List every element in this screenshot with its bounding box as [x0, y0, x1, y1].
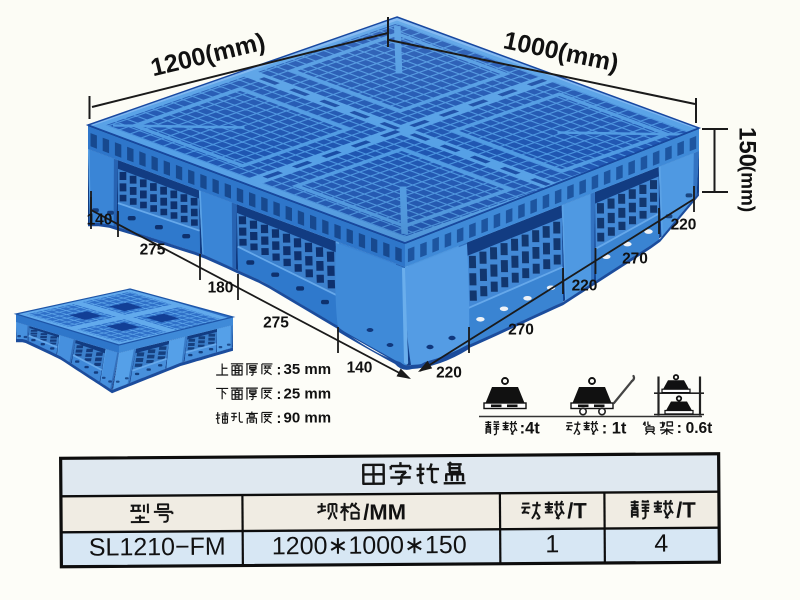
- svg-text::: :: [277, 411, 282, 427]
- svg-text:/T: /T: [676, 497, 696, 522]
- svg-text:275: 275: [140, 242, 166, 259]
- svg-text:/T: /T: [567, 498, 587, 523]
- svg-text:90 mm: 90 mm: [284, 410, 332, 427]
- svg-text:150: 150: [734, 127, 761, 167]
- svg-text::: :: [602, 420, 608, 438]
- svg-text::: :: [277, 363, 282, 379]
- svg-text:1t: 1t: [612, 420, 627, 438]
- svg-text:25 mm: 25 mm: [284, 385, 332, 402]
- svg-text:180: 180: [208, 280, 234, 297]
- svg-text:220: 220: [671, 217, 697, 234]
- svg-text:4: 4: [654, 530, 668, 558]
- svg-text::: :: [677, 420, 682, 437]
- svg-text:/MM: /MM: [363, 499, 406, 524]
- svg-text:1200∗1000∗150: 1200∗1000∗150: [272, 531, 467, 560]
- svg-text:(mm): (mm): [737, 166, 758, 212]
- svg-text:140: 140: [87, 212, 113, 229]
- svg-text:270: 270: [508, 322, 534, 339]
- svg-text:140: 140: [347, 360, 373, 377]
- svg-text::4t: :4t: [520, 420, 541, 438]
- svg-text::: :: [277, 387, 282, 403]
- svg-text:1: 1: [545, 530, 559, 558]
- svg-text:35 mm: 35 mm: [284, 361, 332, 378]
- svg-text:275: 275: [263, 315, 289, 332]
- svg-text:SL1210−FM: SL1210−FM: [89, 533, 226, 562]
- svg-text:0.6t: 0.6t: [686, 420, 713, 437]
- svg-text:220: 220: [436, 365, 462, 382]
- svg-text:270: 270: [622, 251, 648, 268]
- svg-text:220: 220: [572, 278, 598, 295]
